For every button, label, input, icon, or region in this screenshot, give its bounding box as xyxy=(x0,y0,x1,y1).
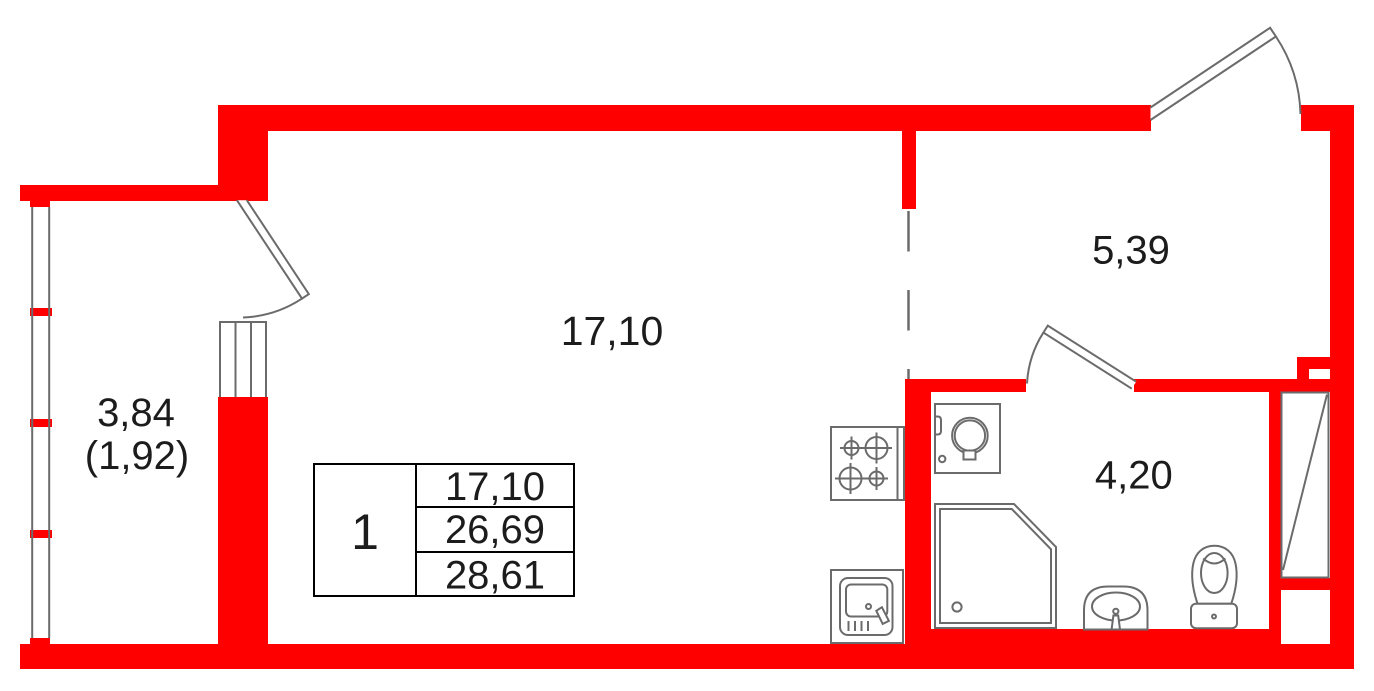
svg-text:5,39: 5,39 xyxy=(1092,229,1170,273)
svg-text:26,69: 26,69 xyxy=(445,508,545,552)
svg-text:4,20: 4,20 xyxy=(1095,454,1173,498)
svg-text:17,10: 17,10 xyxy=(561,308,664,354)
svg-text:(1,92): (1,92) xyxy=(85,434,190,478)
svg-text:17,10: 17,10 xyxy=(445,465,545,509)
svg-text:1: 1 xyxy=(351,504,379,560)
svg-text:3,84: 3,84 xyxy=(97,391,175,435)
svg-text:28,61: 28,61 xyxy=(445,554,545,598)
